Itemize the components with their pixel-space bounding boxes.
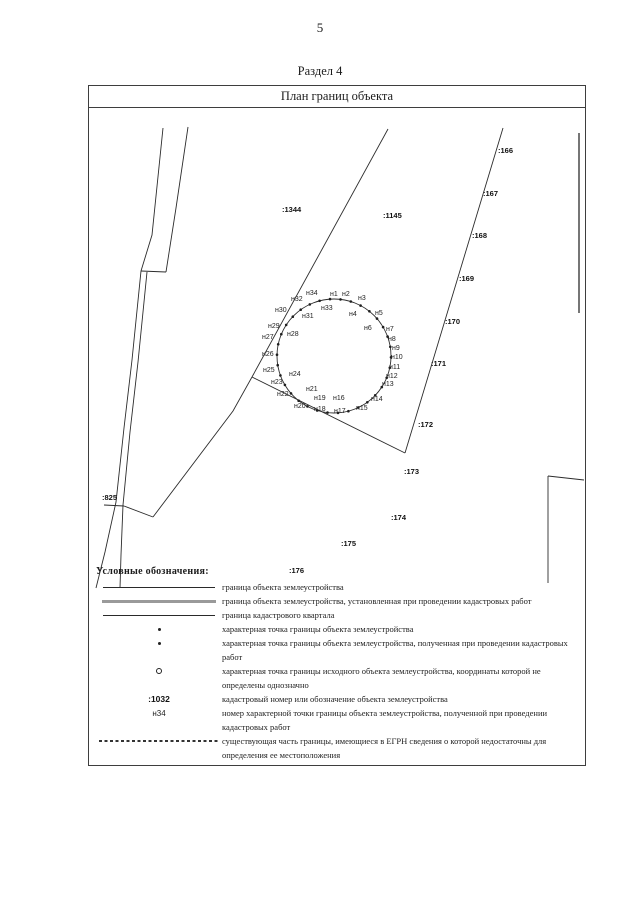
boundary-point-dot [292,315,295,318]
boundary-point-dot [280,333,283,336]
boundary-point-dot [366,401,369,404]
boundary-point-dot [276,353,279,356]
object-boundary-line-symbol [103,587,215,588]
cadastral-number-symbol: :1032 [148,694,170,704]
point-label: н31 [302,313,314,320]
document-page: 5 Раздел 4 План границ объекта [0,0,640,905]
point-label: н16 [333,395,345,402]
legend-item-label: граница кадастрового квартала [222,608,582,622]
boundary-point-dot [309,303,312,306]
boundary-sw-diagonal [153,377,252,517]
established-boundary-line-symbol [102,600,216,603]
point-label: н23 [271,379,283,386]
boundary-point-dot [276,364,279,367]
legend-item-label: характерная точка границы объекта землеу… [222,636,582,664]
parcel-825-tick [104,505,124,506]
legend-row: характерная точка границы объекта землеу… [96,636,582,664]
characteristic-point-dot-icon [158,628,161,631]
boundary-point-dot [279,374,282,377]
legend-row: граница объекта землеустройства [96,580,582,594]
existing-boundary-dashed-symbol [99,740,219,742]
legend-item-label: граница объекта землеустройства [222,580,582,594]
cadastral-label: :167 [483,189,498,198]
cadastral-label: :170 [445,317,460,326]
point-label: н9 [392,345,400,352]
legend-row: граница объекта землеустройства, установ… [96,594,582,608]
point-label: н2 [342,291,350,298]
cadastral-label: :1145 [383,211,402,220]
point-label: н25 [263,367,275,374]
cadastral-label: :175 [341,539,356,548]
point-label: н1 [330,291,338,298]
boundary-east-line [405,128,503,453]
cadastral-label: :1344 [282,205,301,214]
legend-row: граница кадастрового квартала [96,608,582,622]
point-label: н24 [289,371,301,378]
legend-item-label: граница объекта землеустройства, установ… [222,594,582,608]
point-label: н11 [389,364,400,371]
point-label: н5 [375,310,383,317]
point-label: н15 [356,405,368,412]
boundary-point-dot [382,326,385,329]
point-number-symbol: н34 [152,709,165,718]
cadastral-point-dot-icon [158,642,161,645]
point-label: н13 [382,381,394,388]
cadastral-label: :171 [431,359,446,368]
point-label: н30 [275,307,287,314]
point-label: н32 [291,296,303,303]
boundary-point-dot [350,300,353,303]
legend-row: характерная точка границы исходного объе… [96,664,582,692]
legend-item-label: характерная точка границы исходного объе… [222,664,582,692]
legend-row: н34 номер характерной точки границы объе… [96,706,582,734]
boundary-point-dot [306,405,309,408]
point-label: н26 [262,351,274,358]
cadastral-label: :173 [404,467,419,476]
boundary-point-dot [359,304,362,307]
point-label: н34 [306,290,318,297]
point-label: н4 [349,311,357,318]
strip-notch-line [141,271,166,272]
point-label: н6 [364,325,372,332]
boundary-point-dot [376,317,379,320]
boundary-point-dot [318,300,321,303]
boundary-point-dot [277,343,280,346]
undetermined-point-ring-icon [156,668,162,674]
point-label: н22 [277,391,289,398]
point-label: н19 [314,395,326,402]
cadastral-label: :168 [472,231,487,240]
point-label: н20 [294,403,306,410]
legend-item-label: номер характерной точки границы объекта … [222,706,582,734]
cadastral-label: :166 [498,146,513,155]
boundary-point-dot [297,399,300,402]
boundary-map [0,0,640,905]
point-label: н8 [388,336,396,343]
point-label: н28 [287,331,299,338]
point-label: н21 [306,386,318,393]
legend: Условные обозначения: граница объекта зе… [96,566,582,762]
point-label: н29 [268,323,280,330]
point-label: н33 [321,305,333,312]
boundary-point-dot [368,310,371,313]
point-label: н17 [334,408,346,415]
boundary-point-dot [284,384,287,387]
boundary-below-circle [252,377,405,453]
se-parcel-top-edge [548,476,584,480]
boundary-point-dot [347,410,350,413]
boundary-point-dot [329,298,332,301]
cadastral-label: :174 [391,513,406,522]
boundary-point-dot [290,392,293,395]
cadastral-label: :172 [418,420,433,429]
boundary-to-825 [124,506,153,517]
cadastral-label: :169 [459,274,474,283]
quarter-boundary-line-symbol [103,615,215,616]
legend-header: Условные обозначения: [96,566,582,577]
legend-row: характерная точка границы объекта землеу… [96,622,582,636]
strip-right-upper-line [166,127,188,272]
strip-left-line [96,128,163,588]
legend-item-label: существующая часть границы, имеющиеся в … [222,734,582,762]
point-label: н14 [371,396,383,403]
boundary-point-dot [299,308,302,311]
point-label: н10 [391,354,403,361]
boundary-point-dot [326,411,329,414]
legend-item-label: характерная точка границы объекта землеу… [222,622,582,636]
point-label: н12 [386,373,398,380]
point-label: н18 [314,406,326,413]
legend-item-label: кадастровый номер или обозначение объект… [222,692,582,706]
boundary-point-dot [285,324,288,327]
cadastral-label: :825 [102,493,117,502]
point-label: н3 [358,295,366,302]
point-label: н27 [262,334,274,341]
legend-row: :1032 кадастровый номер или обозначение … [96,692,582,706]
boundary-point-dot [339,298,342,301]
point-label: н7 [386,326,394,333]
legend-row: существующая часть границы, имеющиеся в … [96,734,582,762]
